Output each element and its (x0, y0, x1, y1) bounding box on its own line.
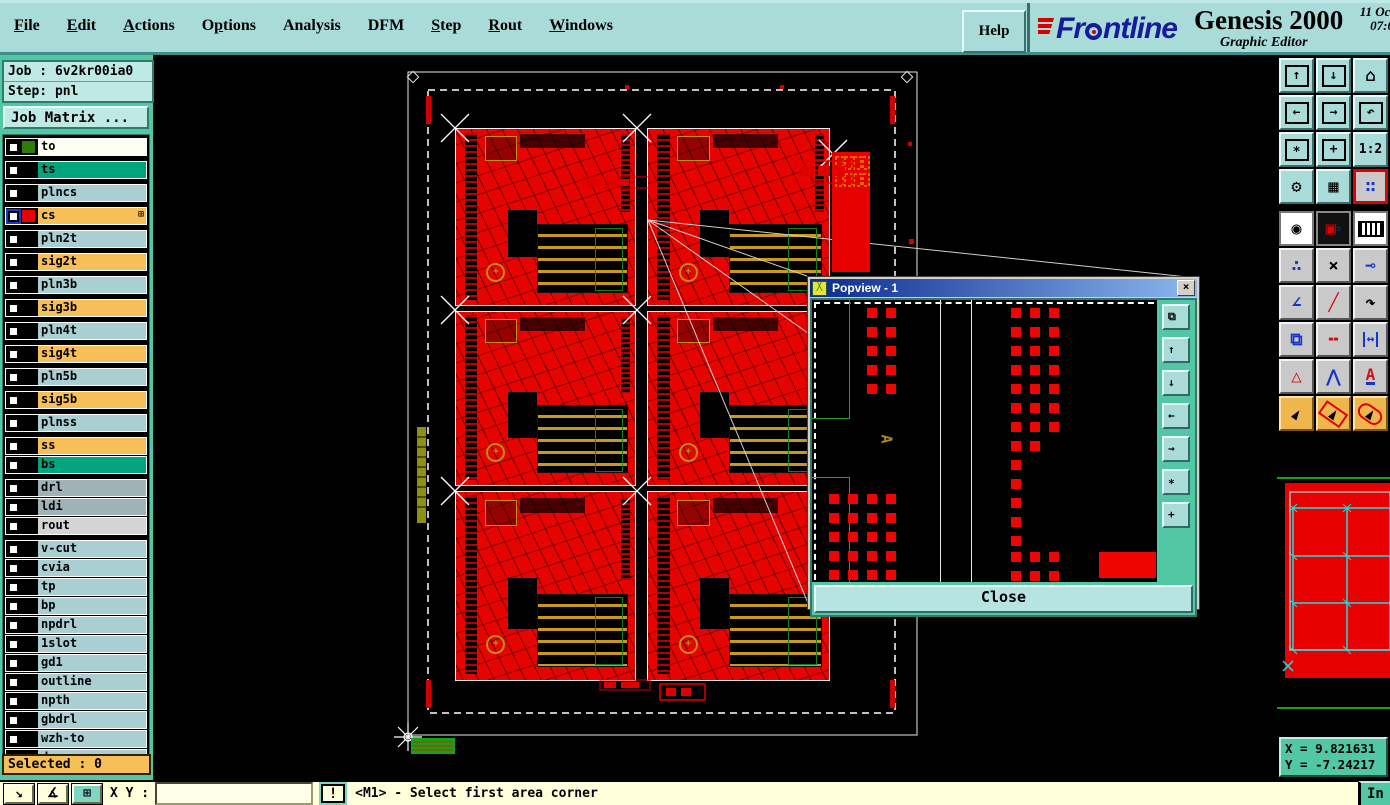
layer-name-label: tp (38, 579, 146, 595)
pad (886, 365, 896, 375)
pcb-board-4[interactable]: + (647, 311, 830, 486)
component-strip (713, 134, 778, 148)
via-bar (815, 134, 824, 211)
layer-visibility-checkbox[interactable] (8, 502, 19, 513)
connector-area (537, 594, 629, 667)
pad (848, 513, 858, 523)
layer-visibility-checkbox[interactable] (8, 280, 19, 291)
layer-row-ts[interactable]: ts (5, 161, 147, 179)
component-strip (713, 498, 778, 513)
coord-y: Y = -7.24217 (1285, 757, 1386, 773)
layer-color-chip[interactable] (22, 520, 35, 532)
layer-row-sig3b[interactable]: sig3b (5, 299, 147, 317)
pad (1011, 479, 1021, 489)
pad (1011, 403, 1021, 413)
layer-row-to[interactable]: to (5, 138, 147, 156)
via-bar (657, 496, 670, 675)
menu-items: FileEditActionsOptionsAnalysisDFMStepRou… (14, 17, 613, 35)
pad (886, 327, 896, 337)
pan-right-icon[interactable]: → (1316, 95, 1351, 130)
pcb-board-1[interactable]: + (455, 128, 636, 306)
layer-row-cvia[interactable]: cvia (5, 559, 147, 577)
layer-visibility-checkbox[interactable] (8, 715, 19, 726)
rout-line (971, 300, 972, 582)
fiducial-circle: + (679, 635, 698, 654)
layer-name-label: to (38, 139, 146, 155)
layer-name-label: plncs (38, 185, 146, 201)
layer-row-tp[interactable]: tp (5, 578, 147, 596)
layer-visibility-checkbox[interactable] (8, 460, 19, 471)
fiducial-circle: + (486, 263, 505, 282)
profile-line (849, 477, 850, 582)
pad (886, 532, 896, 542)
layer-name-label: ts (38, 162, 146, 178)
fiducial-circle: + (679, 443, 698, 462)
layer-visibility-checkbox[interactable] (8, 142, 19, 153)
component-strip (520, 317, 584, 331)
layer-visibility-checkbox[interactable] (8, 696, 19, 707)
layer-visibility-checkbox[interactable] (8, 620, 19, 631)
via-bar (465, 496, 478, 675)
pad (1011, 460, 1021, 470)
layer-name-label: ldi (38, 499, 146, 515)
board-notch (508, 210, 537, 258)
pan-left-icon[interactable]: ← (1279, 95, 1314, 130)
popview-fit-icon[interactable]: ∗ (1162, 469, 1190, 495)
layer-visibility-checkbox[interactable] (8, 441, 19, 452)
job-label: Job : 6v2kr00ia0 (4, 62, 152, 82)
menu-options[interactable]: Options (202, 17, 256, 35)
delete-cross-icon[interactable]: × (1316, 248, 1351, 283)
menu-windows[interactable]: Windows (549, 17, 613, 35)
layer-visibility-checkbox[interactable] (8, 372, 19, 383)
layer-visibility-checkbox[interactable] (8, 483, 19, 494)
layer-name-label: pln3b (38, 277, 146, 293)
via-bar (465, 133, 478, 300)
layer-color-chip[interactable] (22, 695, 35, 707)
layer-row-rout[interactable]: rout (5, 517, 147, 535)
menu-file[interactable]: File (14, 17, 40, 35)
logo-bars-icon (1038, 18, 1054, 40)
layer-color-chip[interactable] (22, 279, 35, 291)
layer-row-gd1[interactable]: gd1 (5, 654, 147, 672)
layer-visibility-checkbox[interactable] (8, 734, 19, 745)
layer-color-chip[interactable] (22, 581, 35, 593)
help-menu[interactable]: Help (962, 10, 1026, 53)
profile-line (812, 418, 850, 419)
component-outline (485, 319, 517, 343)
pad (867, 494, 877, 504)
pad (886, 346, 896, 356)
layer-visibility-checkbox[interactable] (8, 658, 19, 669)
layer-name-label: bp (38, 598, 146, 614)
zoom-window-in-icon[interactable]: ↑ (1279, 58, 1314, 93)
pad (1011, 552, 1021, 562)
setup-tools-icon[interactable]: ⚙ (1279, 169, 1314, 204)
layer-row-sig2t[interactable]: sig2t (5, 253, 147, 271)
line-draw-icon[interactable]: ╱ (1316, 285, 1351, 320)
grid-snap-icon[interactable]: ⊞ (72, 784, 102, 804)
layer-name-label: wzh-to (38, 731, 146, 747)
component-strip (520, 134, 584, 148)
board-notch (508, 578, 537, 629)
layer-color-chip[interactable] (22, 348, 35, 360)
layer-name-label: plnss (38, 415, 146, 431)
pad (829, 494, 839, 504)
layer-row-outline[interactable]: outline (5, 673, 147, 691)
frontline-logo: Fr ntline (1038, 12, 1177, 46)
grow-pad-icon[interactable]: ⊸ (1353, 248, 1388, 283)
pad (1030, 384, 1040, 394)
xy-coordinate-input[interactable] (155, 782, 313, 805)
layer-name-label: cs (38, 208, 146, 224)
layer-row-ldi[interactable]: ldi (5, 498, 147, 516)
status-message: <M1> - Select first area corner (355, 786, 1358, 801)
popview-zoom-in-icon[interactable]: ↑ (1162, 337, 1190, 363)
layer-row-plncs[interactable]: plncs (5, 184, 147, 202)
layer-color-chip[interactable] (22, 371, 35, 383)
menu-step[interactable]: Step (431, 17, 461, 35)
transform-shape-icon[interactable]: ▣▫ (1316, 211, 1351, 246)
marquee-top-line (814, 302, 1154, 304)
layer-name-label: sig3b (38, 300, 146, 316)
fiducial-circle: + (486, 443, 505, 462)
toolbar-grid: ↑↓⌂←→↶∗+1:2⚙▦∷◉▣▫∴×⊸∠╱↷⧉╍↔△⋀A►►► (1278, 57, 1390, 432)
popview-titlebar[interactable]: ╳ Popview - 1 × (810, 279, 1197, 297)
pcb-board-5[interactable]: + (455, 491, 636, 681)
layer-row-v-cut[interactable]: v-cut (5, 540, 147, 558)
layer-color-chip[interactable] (22, 733, 35, 745)
pad (867, 532, 877, 542)
pad (1049, 552, 1059, 562)
layer-color-chip[interactable] (22, 657, 35, 669)
layer-row-pln5b[interactable]: pln5b (5, 368, 147, 386)
angle-mode-icon[interactable]: ∡ (38, 784, 68, 804)
layer-row-pln3b[interactable]: pln3b (5, 276, 147, 294)
popview-window: ╳ Popview - 1 × A ⧉↑↓←→∗+ (807, 276, 1200, 610)
popview-window-icon[interactable]: ⧉ (1162, 304, 1190, 330)
layer-name-label: 1slot (38, 636, 146, 652)
popview-canvas[interactable]: A (812, 300, 1157, 582)
layer-row-wzh-to[interactable]: wzh-to (5, 730, 147, 748)
layer-name-label: pln4t (38, 323, 146, 339)
layer-row-bp[interactable]: bp (5, 597, 147, 615)
menu-actions[interactable]: Actions (123, 17, 175, 35)
layer-row-ss[interactable]: ss (5, 437, 147, 455)
layer-name-label: cvia (38, 560, 146, 576)
pad (886, 384, 896, 394)
genesis-2000-app: FileEditActionsOptionsAnalysisDFMStepRou… (0, 0, 1390, 805)
layer-visibility-checkbox[interactable] (8, 639, 19, 650)
pad (1030, 571, 1040, 581)
pad (886, 570, 896, 580)
logo-text-right: ntline (1103, 12, 1177, 46)
rout-line (940, 300, 941, 582)
zoom-ratio-button[interactable]: 1:2 (1353, 132, 1388, 167)
layer-row-pln2t[interactable]: pln2t (5, 230, 147, 248)
via-bar (621, 134, 630, 211)
popview-title: Popview - 1 (832, 281, 1177, 295)
layer-color-chip[interactable] (22, 501, 35, 513)
brand-area: Fr ntline Genesis 2000 Graphic Editor 11… (1034, 3, 1390, 52)
board-notch (700, 578, 729, 629)
copy-pad-icon[interactable]: ⧉ (1279, 322, 1314, 357)
layer-visibility-checkbox[interactable] (8, 234, 19, 245)
layer-color-chip[interactable] (22, 233, 35, 245)
pad (867, 570, 877, 580)
ruler-icon[interactable] (1353, 211, 1388, 246)
pad (1049, 346, 1059, 356)
pan-mode-icon[interactable]: ↘ (4, 784, 34, 804)
grid-toggle-icon[interactable]: ▦ (1316, 169, 1351, 204)
layer-color-chip[interactable] (22, 256, 35, 268)
layer-color-chip[interactable] (22, 440, 35, 452)
coord-x: X = 9.821631 (1285, 741, 1386, 757)
layer-row-pln4t[interactable]: pln4t (5, 322, 147, 340)
marquee-left-line (814, 302, 816, 580)
pad (886, 551, 896, 561)
layer-visibility-checkbox[interactable] (8, 349, 19, 360)
layer-row-drl[interactable]: drl (5, 479, 147, 497)
layer-visibility-checkbox[interactable] (8, 188, 19, 199)
pad (867, 365, 877, 375)
fiducial-circle: + (486, 635, 505, 654)
pad (1030, 327, 1040, 337)
pad (1030, 552, 1040, 562)
menu-analysis[interactable]: Analysis (283, 17, 341, 35)
selected-count: Selected : 0 (2, 754, 151, 775)
pad (848, 570, 858, 580)
layer-visibility-checkbox[interactable] (8, 165, 19, 176)
zoom-center-icon[interactable]: + (1316, 132, 1351, 167)
layer-color-chip[interactable] (22, 187, 35, 199)
layer-name-label: sig2t (38, 254, 146, 270)
arc-draw-icon[interactable]: ↷ (1353, 285, 1388, 320)
right-toolbar-panel: ↑↓⌂←→↶∗+1:2⚙▦∷◉▣▫∴×⊸∠╱↷⧉╍↔△⋀A►►► (1277, 55, 1390, 780)
pad (848, 494, 858, 504)
component-outline (485, 500, 517, 526)
popview-center-icon[interactable]: + (1162, 502, 1190, 528)
layer-visibility-checkbox[interactable] (8, 563, 19, 574)
pad (1030, 365, 1040, 375)
layer-row-cs[interactable]: cs⊞ (5, 207, 147, 225)
pad (1030, 422, 1040, 432)
pad (1030, 308, 1040, 318)
menu-edit[interactable]: Edit (67, 17, 96, 35)
component-strip (713, 317, 778, 331)
pad (1011, 308, 1021, 318)
pad (829, 513, 839, 523)
layer-row-plnss[interactable]: plnss (5, 414, 147, 432)
pad (829, 551, 839, 561)
date-text: 11 Oct (1360, 5, 1390, 19)
via-bar (657, 315, 670, 479)
cursor-frame-icon[interactable]: ► (1316, 396, 1351, 431)
layer-name-label: sig5b (38, 392, 146, 408)
select-point-icon[interactable]: ◉ (1279, 211, 1314, 246)
layer-name-label: bs (38, 457, 146, 473)
via-bar (621, 498, 630, 581)
layer-color-chip[interactable] (22, 302, 35, 314)
cursor-select-icon[interactable]: ► (1279, 396, 1314, 431)
menubar-divider (1027, 3, 1030, 52)
connector-area (537, 405, 629, 473)
product-subtitle: Graphic Editor (1220, 35, 1308, 51)
connect-dots-icon[interactable]: ∴ (1279, 248, 1314, 283)
menu-rout[interactable]: Rout (488, 17, 522, 35)
pad (1011, 571, 1021, 581)
layer-visibility-checkbox[interactable] (8, 418, 19, 429)
layer-color-chip[interactable] (22, 210, 35, 222)
layer-name-label: pln2t (38, 231, 146, 247)
pcb-board-2[interactable]: + (647, 128, 830, 306)
pad (1011, 327, 1021, 337)
pad (1049, 571, 1059, 581)
pad (1030, 441, 1040, 451)
popview-window-icon: ╳ (812, 281, 827, 296)
layer-list: totsplncscs⊞pln2tsig2tpln3bsig3bpln4tsig… (2, 134, 150, 756)
menu-dfm[interactable]: DFM (368, 17, 404, 35)
layer-visibility-checkbox[interactable] (8, 521, 19, 532)
board-notch (700, 210, 729, 258)
alert-button[interactable]: ! (321, 784, 345, 803)
previous-view-icon[interactable]: ↶ (1353, 95, 1388, 130)
popview-pan-right-icon[interactable]: → (1162, 436, 1190, 462)
layer-visibility-checkbox[interactable] (8, 601, 19, 612)
pad (867, 327, 877, 337)
layer-visibility-checkbox[interactable] (8, 677, 19, 688)
cursor-coordinates: X = 9.821631 Y = -7.24217 (1279, 737, 1388, 777)
pad (886, 308, 896, 318)
pad (1011, 517, 1021, 527)
layer-color-chip[interactable] (22, 714, 35, 726)
angle-measure-icon[interactable]: ∠ (1279, 285, 1314, 320)
via-bar (465, 315, 478, 479)
board-notch (508, 392, 537, 439)
component-outline (485, 136, 517, 161)
pad (1011, 365, 1021, 375)
pad (848, 551, 858, 561)
layer-color-chip[interactable] (22, 543, 35, 555)
overview-navigator[interactable] (1277, 465, 1390, 737)
layer-name-label: npth (38, 693, 146, 709)
xy-label: X Y : (110, 786, 149, 801)
pad (867, 308, 877, 318)
layer-color-chip[interactable] (22, 417, 35, 429)
layer-visibility-checkbox[interactable] (8, 544, 19, 555)
units-indicator[interactable]: In (1358, 781, 1390, 805)
pad (1011, 441, 1021, 451)
layer-visibility-checkbox[interactable] (8, 211, 19, 222)
profile-line (812, 477, 850, 478)
layer-color-chip[interactable] (22, 141, 35, 153)
popview-close-button[interactable]: Close (814, 585, 1193, 613)
layer-visibility-checkbox[interactable] (8, 395, 19, 406)
job-matrix-button[interactable]: Job Matrix ... (3, 106, 149, 129)
pad (886, 494, 896, 504)
layer-row-npth[interactable]: npth (5, 692, 147, 710)
component-outline (677, 136, 710, 161)
pad (867, 551, 877, 561)
layer-row-npdrl[interactable]: npdrl (5, 616, 147, 634)
layer-color-chip[interactable] (22, 619, 35, 631)
layer-name-label: npdrl (38, 617, 146, 633)
layer-color-chip[interactable] (22, 482, 35, 494)
break-line-icon[interactable]: ╍ (1316, 322, 1351, 357)
layer-color-chip[interactable] (22, 325, 35, 337)
layer-color-chip[interactable] (22, 600, 35, 612)
layer-visibility-checkbox[interactable] (8, 326, 19, 337)
pad (1030, 403, 1040, 413)
layer-visibility-checkbox[interactable] (8, 257, 19, 268)
measure-width-icon[interactable]: ↔ (1353, 322, 1388, 357)
pad (867, 346, 877, 356)
layer-color-chip[interactable] (22, 394, 35, 406)
net-highlight-icon[interactable]: ∷ (1353, 169, 1388, 204)
home-view-icon[interactable]: ⌂ (1353, 58, 1388, 93)
layer-color-chip[interactable] (22, 459, 35, 471)
layer-color-chip[interactable] (22, 164, 35, 176)
status-bar: ↘ ∡ ⊞ X Y : ! <M1> - Select first area c… (0, 780, 1390, 805)
popview-toolbar: ⧉↑↓←→∗+ (1157, 300, 1195, 582)
component-outline (677, 500, 710, 526)
cursor-round-icon[interactable]: ► (1353, 396, 1388, 431)
popview-frame: A ⧉↑↓←→∗+ Close (810, 298, 1197, 617)
layer-color-chip[interactable] (22, 562, 35, 574)
pad (1049, 308, 1059, 318)
via-bar (657, 133, 670, 300)
text-medium-icon[interactable]: ⋀ (1316, 359, 1351, 394)
pad (1011, 384, 1021, 394)
pcb-board-6[interactable]: + (647, 491, 830, 681)
step-label: Step: pnl (4, 82, 152, 101)
via-bar (621, 317, 630, 393)
layer-row-gbdrl[interactable]: gbdrl (5, 711, 147, 729)
layer-color-chip[interactable] (22, 676, 35, 688)
layer-row-bs[interactable]: bs (5, 456, 147, 474)
layer-visibility-checkbox[interactable] (8, 303, 19, 314)
text-small-icon[interactable]: △ (1279, 359, 1314, 394)
popview-pan-left-icon[interactable]: ← (1162, 403, 1190, 429)
pad (867, 384, 877, 394)
pad (1049, 403, 1059, 413)
fiducial-circle: + (679, 263, 698, 282)
layer-row-sig4t[interactable]: sig4t (5, 345, 147, 363)
layer-name-label: v-cut (38, 541, 146, 557)
zoom-window-out-icon[interactable]: ↓ (1316, 58, 1351, 93)
layer-grid-icon: ⊞ (138, 210, 144, 220)
job-info-box: Job : 6v2kr00ia0 Step: pnl (2, 60, 154, 103)
zoom-fit-icon[interactable]: ∗ (1279, 132, 1314, 167)
popview-close-x-icon[interactable]: × (1177, 280, 1195, 296)
layer-row-1slot[interactable]: 1slot (5, 635, 147, 653)
menu-bar: FileEditActionsOptionsAnalysisDFMStepRou… (0, 0, 1390, 55)
layer-visibility-checkbox[interactable] (8, 582, 19, 593)
component-strip (520, 498, 584, 513)
pcb-board-3[interactable]: + (455, 311, 636, 486)
layer-color-chip[interactable] (22, 638, 35, 650)
board-notch (700, 392, 729, 439)
layer-name-label: ss (38, 438, 146, 454)
logo-text-left: Fr (1056, 12, 1084, 46)
popview-zoom-out-icon[interactable]: ↓ (1162, 370, 1190, 396)
pad (1011, 536, 1021, 546)
text-large-icon[interactable]: A (1353, 359, 1388, 394)
layer-row-sig5b[interactable]: sig5b (5, 391, 147, 409)
navigator-graphics (1277, 465, 1390, 737)
layer-name-label: gbdrl (38, 712, 146, 728)
pad (1030, 346, 1040, 356)
